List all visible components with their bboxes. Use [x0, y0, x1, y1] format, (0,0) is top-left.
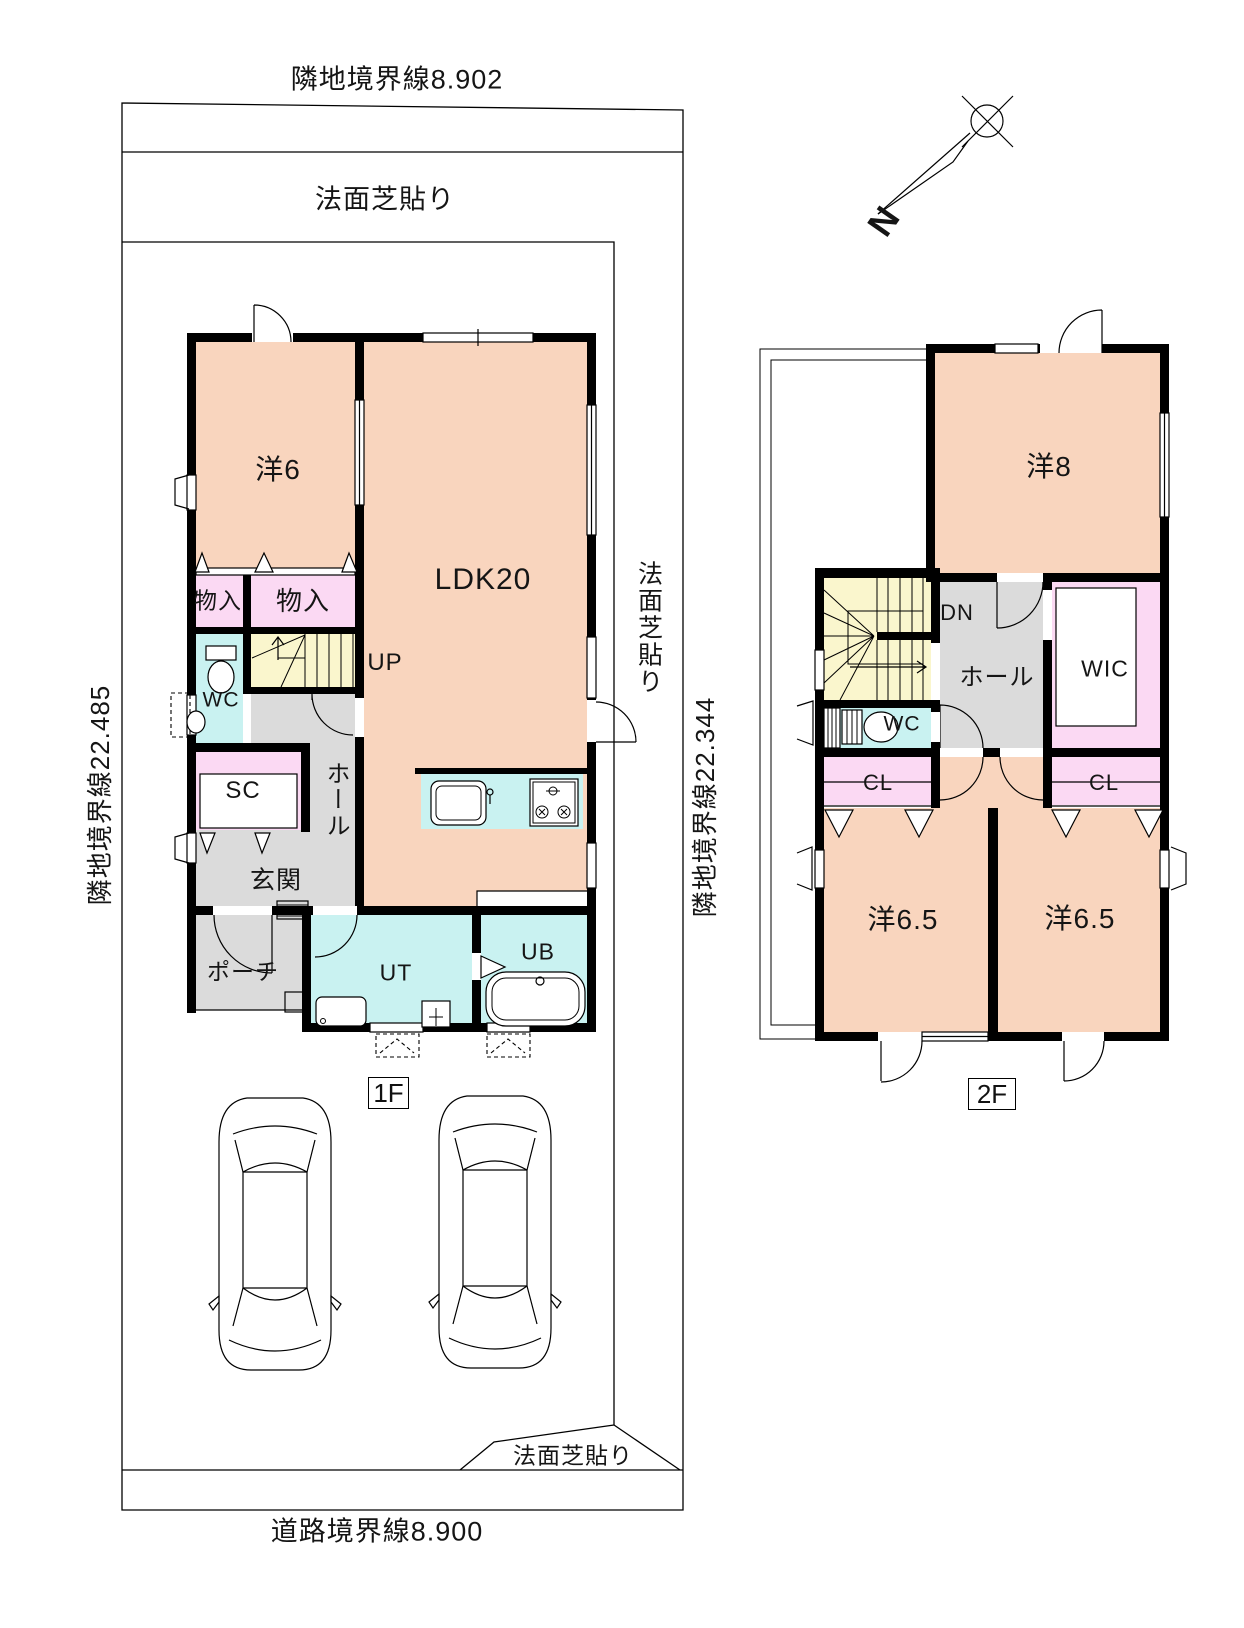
room-label-yo6: 洋6 [255, 456, 301, 484]
room-label-wc2: WC [884, 714, 921, 735]
north-compass-icon [878, 96, 1013, 214]
slope-right-label: 法面芝貼り [636, 561, 661, 696]
car-right [429, 1096, 561, 1368]
room-label-wic: WIC [1081, 658, 1129, 681]
plan-linework [0, 0, 1244, 1628]
floorplan-sheet: 隣地境界線8.902 法面芝貼り 隣地境界線22.485 法面芝貼り 隣地境界線… [0, 0, 1244, 1628]
room-label-ub: UB [521, 941, 555, 964]
floor1-tag: 1F [368, 1077, 409, 1109]
floor2-tag-label: 2F [977, 1079, 1007, 1110]
room-label-wc1: WC [203, 690, 240, 711]
floor2-plan [760, 310, 1186, 1082]
slope-top-label: 法面芝貼り [315, 187, 455, 214]
room-label-hall1: ホール [323, 761, 347, 839]
room-label-sc: SC [225, 779, 260, 803]
left-boundary-label: 隣地境界線22.485 [87, 685, 113, 906]
room-label-ut: UT [380, 962, 413, 985]
room-label-mono1: 物入 [194, 590, 242, 613]
room-label-mono2: 物入 [276, 588, 330, 614]
room-label-cl1: CL [863, 772, 893, 794]
stairs-up-label: UP [367, 651, 402, 675]
room-label-yo65a: 洋6.5 [868, 906, 939, 934]
stairs-dn-label: DN [940, 602, 974, 624]
floor1-plan [171, 305, 636, 1057]
room-label-cl2: CL [1089, 772, 1119, 794]
room-label-yo65b: 洋6.5 [1045, 905, 1116, 933]
room-label-porch: ポーチ [207, 961, 279, 984]
car-left [209, 1098, 341, 1370]
floor1-tag-label: 1F [373, 1078, 403, 1109]
room-label-hall2: ホール [960, 666, 1035, 690]
right-boundary-label: 隣地境界線22.344 [692, 697, 718, 918]
room-label-genkan: 玄関 [250, 869, 302, 894]
floor2-tag: 2F [968, 1078, 1016, 1110]
room-label-ldk: LDK20 [435, 565, 532, 595]
road-boundary-label: 道路境界線8.900 [271, 1519, 484, 1546]
room-label-yo8: 洋8 [1026, 453, 1072, 481]
top-boundary-label: 隣地境界線8.902 [291, 67, 504, 94]
slope-bottom-label: 法面芝貼り [513, 1445, 633, 1468]
